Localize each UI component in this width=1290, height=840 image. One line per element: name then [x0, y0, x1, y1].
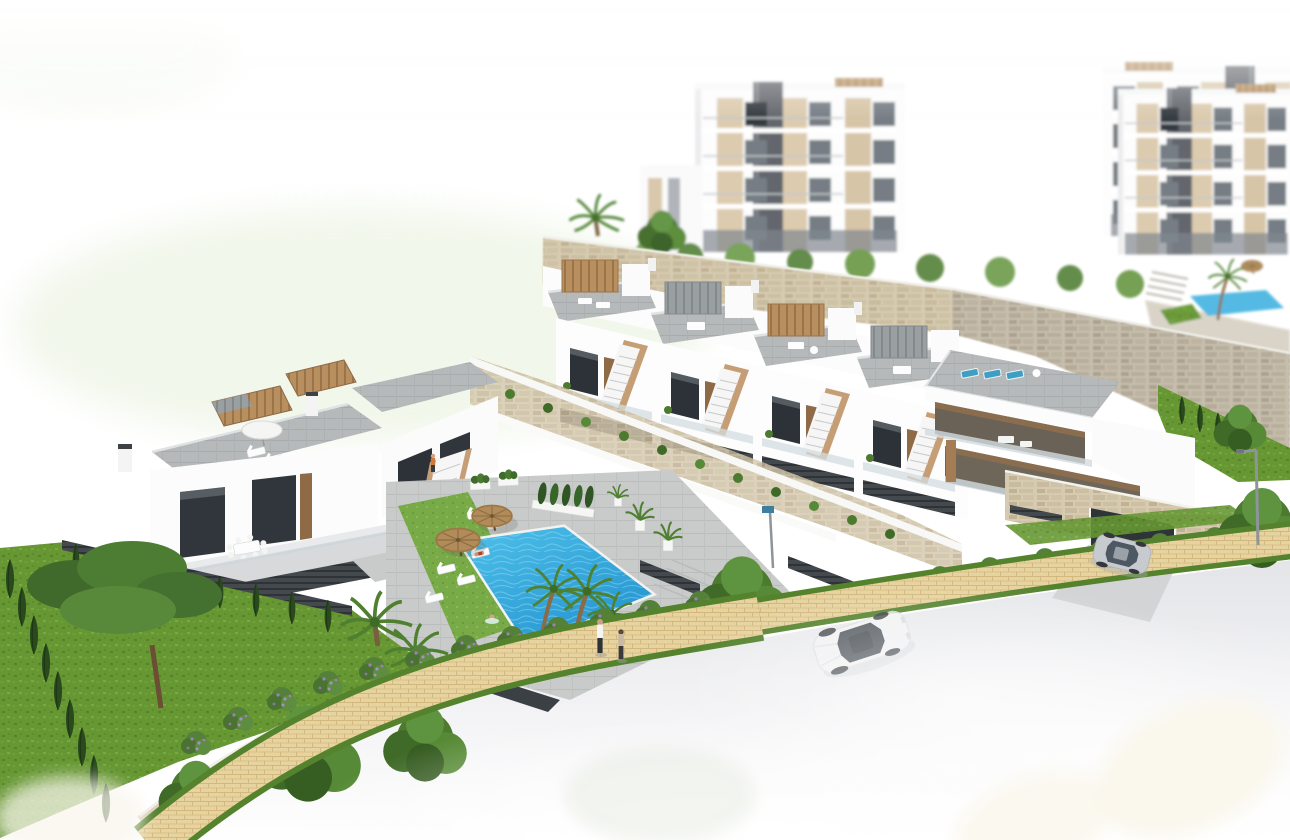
top-bloom: [0, 0, 1290, 120]
architectural-render-canvas: [0, 0, 1290, 840]
wood-pillar: [946, 440, 956, 482]
chimney: [118, 446, 132, 472]
render-scene: [0, 0, 1290, 840]
chimney: [306, 394, 318, 416]
apartment-panel: [717, 98, 743, 252]
villa-window: [252, 475, 296, 546]
ghost-tree: [565, 747, 755, 840]
resident-on-staircase: [431, 454, 435, 472]
